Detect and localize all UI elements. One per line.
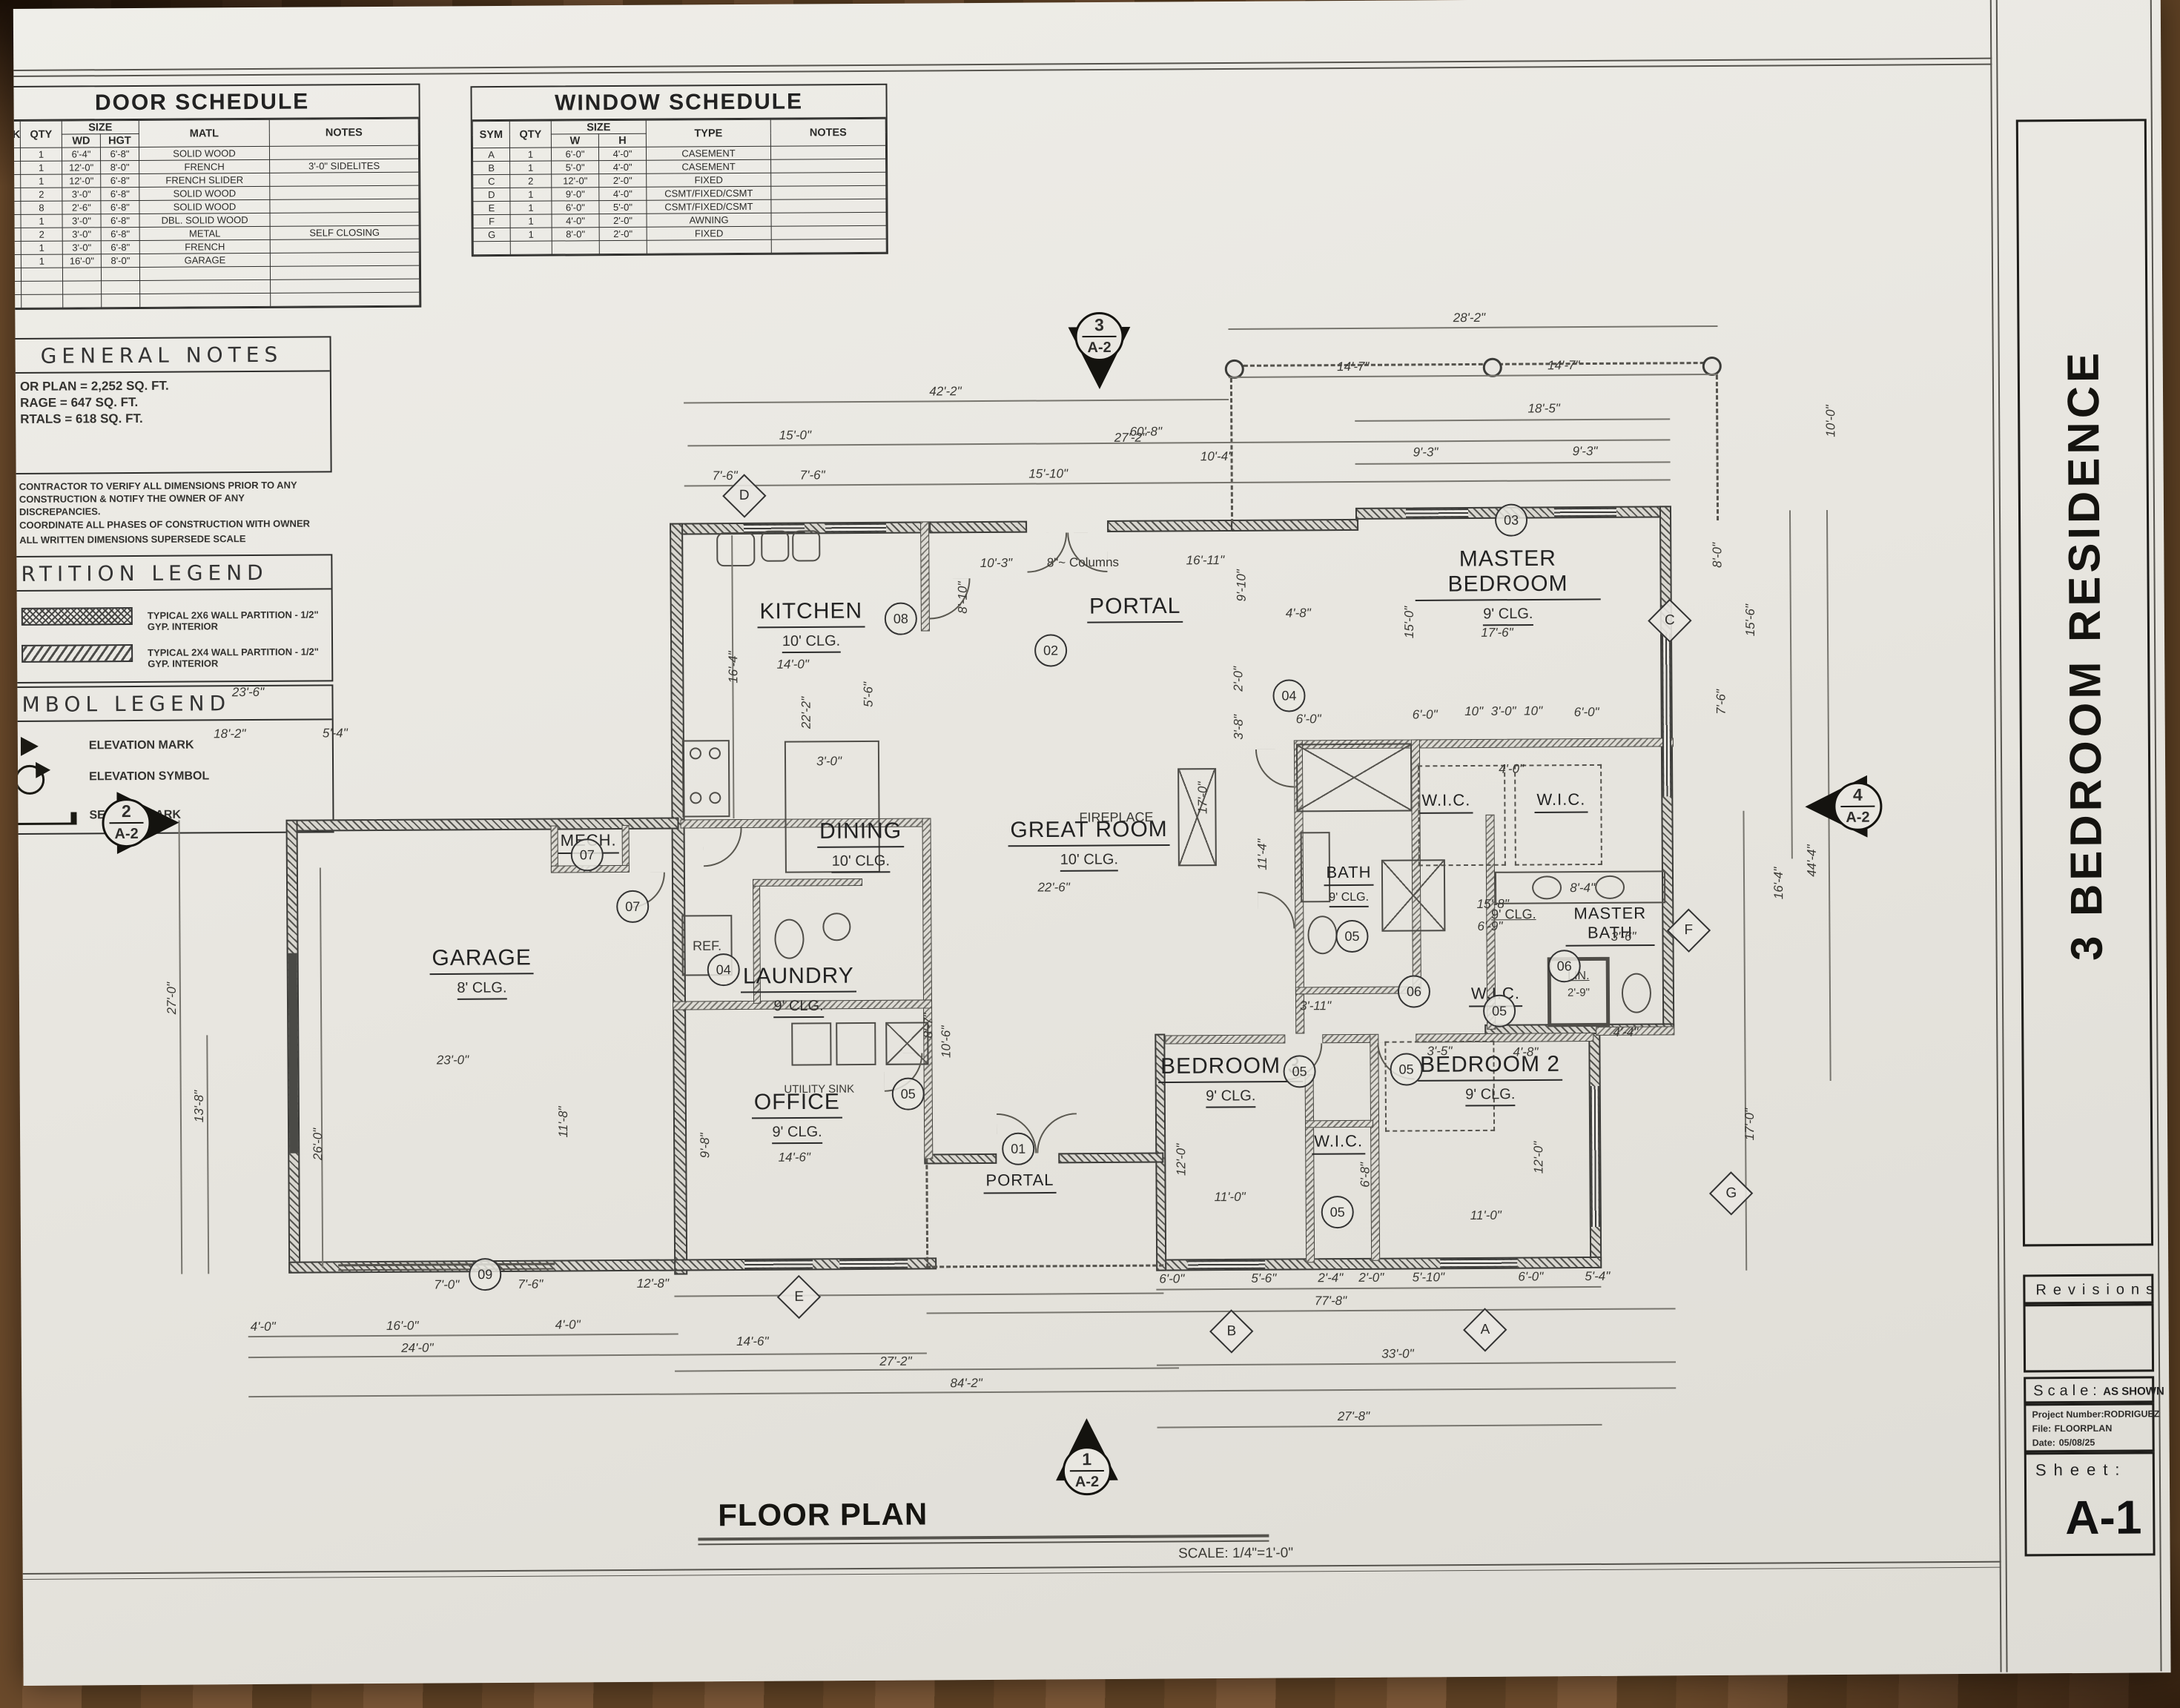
partition: [551, 826, 558, 872]
door-swing: [1258, 891, 1295, 928]
dim-label: 16'-11": [1186, 553, 1225, 568]
dim-label: 5'-4": [1585, 1269, 1610, 1284]
dim-label: 7'-6": [1714, 689, 1728, 715]
dim-line: [248, 1334, 678, 1338]
dim-label: 3'-8": [1232, 715, 1246, 740]
dim-label: 5'-6": [1251, 1271, 1276, 1286]
wall-segment: [670, 523, 687, 1274]
dim-label: 27'-0": [165, 982, 179, 1014]
dim-label: 15'-10": [1028, 466, 1068, 481]
dim-line: [1228, 325, 1717, 330]
partition: [1370, 1034, 1380, 1261]
dim-label: 11'-0": [1470, 1208, 1502, 1223]
col-size: SIZE: [62, 120, 139, 134]
dim-label: 7'-6": [713, 469, 738, 483]
dim-line: [674, 1293, 1163, 1297]
dim-label: 8'-4": [1570, 881, 1595, 896]
project-title: 3 BEDROOM RESIDENCE: [2058, 349, 2113, 961]
door-swing: [704, 828, 742, 867]
window: [1440, 1259, 1517, 1268]
dim-label: 9'-10": [1234, 569, 1249, 601]
room-bedroom-2: BEDROOM 29' CLG.: [1418, 1052, 1562, 1107]
project-number-label: Project Number:: [2032, 1409, 2104, 1420]
frame-line-bottom2: [13, 1567, 2001, 1580]
partition-legend: RTITION LEGEND TYPICAL 2X6 WALL PARTITIO…: [13, 554, 334, 683]
window-mark: A: [1463, 1308, 1507, 1351]
partition: [753, 878, 862, 887]
dim-label: 14'-6": [779, 1150, 810, 1165]
sheet-number: A-1: [2065, 1489, 2142, 1545]
symbol-legend-title: MBOL LEGEND: [13, 686, 332, 722]
door-mark: 07: [571, 838, 604, 871]
project-info-box: Project Number: RODRIGUEZ File: FLOORPLA…: [2024, 1403, 2154, 1452]
dim-label: 77'-8": [1315, 1294, 1347, 1308]
partition: [1165, 1035, 1285, 1045]
col-h: H: [598, 133, 646, 147]
col-mark: MARK: [13, 121, 21, 148]
door-row-empty: [13, 292, 420, 308]
dim-line: [1789, 510, 1793, 858]
dim-label: 8'-10": [956, 581, 971, 613]
wall-segment: [285, 818, 678, 832]
dim-label: 26'-0": [311, 1128, 326, 1160]
dim-label: 16'-4": [726, 651, 741, 683]
toilet: [774, 918, 804, 959]
frame-line-top-inner: [13, 64, 1992, 77]
dim-line: [675, 1367, 1179, 1371]
door-mark: 05: [892, 1078, 925, 1110]
col-type: TYPE: [646, 119, 770, 147]
revisions-label-box: Revisions: [2023, 1274, 2153, 1304]
window-mark: E: [777, 1275, 821, 1319]
shelves: [1381, 859, 1446, 932]
fireplace-label: FIREPLACE: [1079, 810, 1153, 826]
dim-label: 6'-8": [1358, 1162, 1373, 1188]
note-4: COORDINATE ALL PHASES OF CONSTRUCTION WI…: [19, 517, 310, 533]
room-portal-front: PORTAL: [983, 1171, 1056, 1194]
partition: [1322, 1034, 1371, 1043]
general-notes: GENERAL NOTES OR PLAN = 2,252 SQ. FT. RA…: [13, 336, 332, 474]
dim-label: 5'-6": [861, 682, 876, 707]
dim-label: 7'-6": [800, 468, 825, 483]
burner: [709, 792, 721, 804]
door-mark: 05: [1483, 995, 1516, 1027]
file-value: FLOORPLAN: [2055, 1423, 2113, 1434]
window: [839, 1260, 908, 1269]
area-garage: RAGE = 647 SQ. FT.: [20, 394, 138, 412]
project-number-value: RODRIGUEZ: [2104, 1409, 2159, 1419]
dim-label: 14'-7": [1548, 358, 1579, 373]
partition: [1305, 1120, 1373, 1128]
dim-label: 10'-6": [939, 1026, 954, 1058]
elevation-marker-left: 2A-2: [102, 798, 151, 847]
col-wd: WD: [62, 134, 100, 148]
door-schedule-table: MARK QTY SIZE MATL NOTES WD HGT 116'-4"6…: [13, 119, 420, 309]
dim-label: 3'-5": [1427, 1044, 1452, 1059]
window-mark: B: [1209, 1309, 1253, 1353]
col-size: SIZE: [551, 120, 646, 134]
toilet: [1307, 916, 1337, 954]
door-mark: 07: [616, 890, 649, 923]
dim-label: 6'-0": [1159, 1271, 1184, 1286]
room-kitchen: KITCHEN10' CLG.: [757, 598, 865, 653]
door-mark: 03: [1495, 504, 1527, 537]
dim-label: 24'-0": [401, 1341, 433, 1356]
dim-label: 3'-11": [1300, 999, 1331, 1013]
dim-label: 4'-0": [1499, 762, 1524, 777]
door-mark: 05: [1335, 920, 1368, 953]
date-value: 05/08/25: [2059, 1437, 2095, 1448]
burner: [709, 747, 721, 759]
burner: [690, 792, 701, 804]
col-sym: SYM: [472, 121, 509, 148]
dim-line: [1156, 1286, 1601, 1291]
dim-label: 17'-6": [1481, 626, 1513, 640]
dim-label: 3'-6": [1611, 930, 1636, 944]
dim-label: 6'-0": [1518, 1269, 1543, 1284]
toilet: [1622, 973, 1651, 1013]
room-wic-master-1: W.I.C.: [1419, 790, 1473, 813]
dim-label: 4'-0": [555, 1317, 581, 1332]
door-mark: 08: [885, 603, 917, 635]
scale-label: Scale:: [2033, 1383, 2101, 1400]
titleblock-left-line2: [1996, 0, 2008, 1672]
partition-2x6-swatch: [22, 607, 133, 626]
dim-label: 11'-0": [1215, 1190, 1246, 1205]
dim-label: 42'-2": [929, 384, 961, 399]
room-bath: BATH9' CLG.: [1324, 863, 1373, 907]
dim-label: 22'-2": [799, 697, 813, 729]
window: [288, 953, 299, 1153]
wic-outline: [1418, 765, 1506, 867]
dim-label: 13'-8": [192, 1090, 207, 1122]
dim-line: [248, 1352, 927, 1358]
room-master-bath: MASTER BATH: [1565, 904, 1654, 947]
window-schedule: WINDOW SCHEDULE SYM QTY SIZE TYPE NOTES …: [470, 84, 888, 256]
title-underline2: [698, 1540, 1269, 1546]
dim-line: [927, 1308, 1676, 1314]
dim-label: 84'-2": [950, 1376, 982, 1391]
symbol-legend: MBOL LEGEND ELEVATION MARK ELEVATION SYM…: [13, 684, 334, 835]
dim-label: 6'-0": [1413, 707, 1438, 722]
wall-segment: [929, 521, 1027, 534]
col-w: W: [551, 134, 598, 148]
general-notes-title: GENERAL NOTES: [13, 337, 330, 374]
dim-label: 27'-2": [879, 1354, 911, 1369]
window-row-empty: [473, 239, 886, 254]
wall-segment: [1107, 520, 1232, 532]
sink: [1532, 875, 1562, 899]
door-mark: 09: [469, 1258, 501, 1291]
dim-label: 2'-0": [1358, 1271, 1384, 1285]
partition: [1305, 1074, 1315, 1262]
door-mark: 05: [1390, 1053, 1422, 1085]
dim-line: [178, 821, 182, 1274]
sink: [1595, 875, 1625, 899]
burner: [690, 747, 701, 759]
scale-value: AS SHOWN: [2103, 1385, 2164, 1398]
room-master-bedroom: MASTER BEDROOM9' CLG.: [1415, 546, 1601, 626]
revisions-label: Revisions: [2035, 1281, 2160, 1299]
door-mark: 06: [1398, 975, 1430, 1007]
dim-label: 4'-8": [1286, 606, 1311, 620]
dim-label: 14'-0": [777, 657, 809, 672]
col-notes: NOTES: [269, 119, 418, 146]
window-mark: C: [1648, 599, 1691, 643]
door-schedule: DOOR SCHEDULE MARK QTY SIZE MATL NOTES W…: [13, 84, 421, 311]
blueprint-sheet: DOOR SCHEDULE MARK QTY SIZE MATL NOTES W…: [13, 0, 2171, 1686]
kitchen-sink-bowl: [792, 530, 820, 561]
partition: [920, 521, 930, 631]
door-mark: 05: [1321, 1196, 1354, 1228]
dim-label: 10": [1524, 704, 1542, 718]
dim-line: [206, 1035, 209, 1274]
dim-label: 9'-3": [1413, 445, 1439, 460]
col-matl: MATL: [139, 119, 269, 147]
shelves: [1296, 743, 1413, 812]
dim-label: 17'-0": [1195, 781, 1210, 813]
partition-2x6-label: TYPICAL 2X6 WALL PARTITION - 1/2" GYP. I…: [148, 609, 331, 632]
door-mark: 05: [1283, 1055, 1315, 1088]
door-swing: [1255, 749, 1294, 787]
sheet-box: Sheet: A-1: [2024, 1452, 2156, 1556]
dim-label: 14'-7": [1337, 360, 1369, 374]
ref-label: REF.: [693, 939, 721, 954]
washer: [791, 1022, 831, 1065]
dim-label: 27'-2": [1114, 431, 1146, 446]
dim-label: 7'-6": [518, 1277, 543, 1292]
partition-2x4-label: TYPICAL 2X4 WALL PARTITION - 1/2" GYP. I…: [148, 646, 331, 669]
dim-label: 2'-4": [1318, 1271, 1343, 1285]
sink: [822, 913, 850, 941]
columns-label: 8"~ Columns: [1047, 555, 1119, 571]
room-bedroom-3: BEDROOM 39' CLG.: [1158, 1053, 1303, 1108]
kitchen-sink: [716, 532, 755, 566]
col-qty: QTY: [509, 121, 551, 148]
dim-line: [1157, 1424, 1602, 1429]
room-wic-master-2: W.I.C.: [1534, 790, 1588, 813]
dim-label: 6'-9": [1477, 919, 1502, 934]
floor-plan: KITCHEN10' CLG. DINING10' CLG. GREAT ROO…: [13, 0, 2171, 6]
plan-scale-note: SCALE: 1/4"=1'-0": [1178, 1545, 1293, 1562]
dim-label: 44'-4": [1805, 844, 1820, 876]
dim-label: 6'-0": [1574, 705, 1599, 720]
dim-label: 15'-6": [1743, 604, 1758, 636]
door-mark: 02: [1034, 634, 1067, 666]
dim-label: 16'-4": [1771, 867, 1786, 899]
dim-line: [320, 867, 323, 1268]
dim-label: 33'-0": [1381, 1346, 1413, 1361]
dim-label: 16'-0": [386, 1319, 418, 1334]
door-mark: 06: [1548, 950, 1581, 982]
partition-legend-title: RTITION LEGEND: [13, 555, 331, 592]
dim-label: 9'-3": [1573, 444, 1598, 459]
partition: [922, 818, 933, 1159]
dim-label: 10'-3": [980, 556, 1012, 571]
dim-label: 11'-8": [556, 1106, 571, 1137]
floor-plan-title: FLOOR PLAN: [718, 1496, 928, 1533]
dim-line: [684, 399, 1229, 403]
window-schedule-title: WINDOW SCHEDULE: [472, 85, 885, 121]
room-portal-rear: PORTAL: [1087, 594, 1183, 623]
elevation-symbol-label: ELEVATION SYMBOL: [89, 769, 209, 784]
col-hgt: HGT: [100, 133, 139, 147]
section-mark-icon: [15, 812, 76, 825]
dim-label: 5'-10": [1413, 1270, 1444, 1285]
col-notes: NOTES: [770, 119, 885, 146]
room-dining: DINING10' CLG.: [817, 818, 904, 873]
dim-label: 3'-0": [816, 754, 842, 769]
dim-label: 15'-0": [779, 428, 811, 443]
dim-label: 8'-0": [1710, 543, 1725, 568]
note-2: CONSTRUCTION & NOTIFY THE OWNER OF ANY: [19, 491, 245, 506]
dim-label: 18'-2": [214, 726, 245, 741]
room-laundry: LAUNDRY9' CLG.: [741, 964, 856, 1019]
titleblock-left-line: [1990, 0, 2002, 1672]
scale-box: Scale: AS SHOWN: [2024, 1376, 2154, 1403]
door-mark: 01: [1002, 1133, 1034, 1165]
dim-label: 9'-8": [698, 1133, 713, 1158]
dryer: [836, 1022, 876, 1065]
kitchen-sink-bowl: [761, 531, 789, 562]
wic-outline: [1514, 764, 1602, 866]
window-schedule-table: SYM QTY SIZE TYPE NOTES W H A16'-0"4'-0"…: [472, 119, 887, 255]
door-schedule-title: DOOR SCHEDULE: [13, 85, 419, 122]
dim-label: 11'-4": [1255, 839, 1270, 870]
dim-label: 7'-0": [434, 1277, 459, 1292]
sheet-label: Sheet:: [2035, 1460, 2127, 1480]
partition-2x4-swatch: [22, 644, 133, 663]
elevation-marker-right: 4A-2: [1833, 782, 1882, 831]
dim-label: 12'-0": [1174, 1144, 1189, 1176]
dim-label: 23'-0": [437, 1053, 469, 1067]
room-office: OFFICE9' CLG.: [752, 1090, 842, 1145]
dim-label: 10": [1464, 704, 1483, 719]
dim-label: 4'-8": [1513, 1045, 1538, 1059]
date-label: Date:: [2032, 1437, 2055, 1448]
dim-label: 22'-6": [1037, 880, 1069, 895]
elevation-marker-bottom: 1A-2: [1063, 1446, 1112, 1495]
area-floor-plan: OR PLAN = 2,252 SQ. FT.: [20, 377, 169, 396]
dim-label: 15'-8": [1477, 897, 1509, 912]
door-mark: 04: [707, 953, 740, 986]
note-5: ALL WRITTEN DIMENSIONS SUPERSEDE SCALE: [19, 532, 245, 547]
area-portals: RTALS = 618 SQ. FT.: [20, 410, 143, 428]
room-garage: GARAGE8' CLG.: [429, 945, 534, 1000]
dim-label: 4'-4": [1613, 1025, 1638, 1040]
elevation-marker-top: 3A-2: [1074, 312, 1123, 361]
utility-sink-label: UTILITY SINK: [784, 1083, 854, 1096]
dim-label: 18'-5": [1527, 401, 1559, 416]
dim-label: 3'-0": [1491, 704, 1516, 719]
dim-label: 4'-0": [251, 1320, 276, 1334]
dim-label: 10'-4": [1200, 449, 1232, 464]
dim-label: 5'-4": [323, 726, 348, 741]
window: [825, 523, 886, 533]
elevation-mark-label: ELEVATION MARK: [89, 739, 194, 753]
dim-label: 2'-0": [1231, 666, 1246, 692]
partition: [622, 825, 630, 871]
dim-label: 12'-8": [637, 1277, 669, 1291]
revisions-empty-box: [2024, 1303, 2155, 1372]
elevation-mark-icon: [21, 737, 39, 756]
dim-label: 17'-0": [1743, 1108, 1757, 1140]
sheet-content: DOOR SCHEDULE MARK QTY SIZE MATL NOTES W…: [13, 0, 2171, 1686]
window: [1662, 633, 1671, 796]
dim-label: 23'-6": [232, 685, 264, 700]
title-underline: [698, 1535, 1269, 1541]
dim-label: 12'-0": [1531, 1142, 1546, 1174]
file-label: File:: [2032, 1423, 2052, 1434]
dim-label: 28'-2": [1453, 311, 1485, 325]
window: [744, 1260, 813, 1269]
dim-line: [1157, 1361, 1676, 1366]
dim-label: 14'-6": [736, 1334, 768, 1349]
door-mark: 04: [1272, 679, 1305, 712]
note-3: DISCREPANCIES.: [19, 505, 101, 519]
col-qty: QTY: [20, 121, 62, 148]
window: [1591, 1086, 1600, 1227]
dim-label: 15'-0": [1402, 606, 1417, 638]
dim-label: 8'-7": [921, 1013, 936, 1038]
dim-label: 10'-0": [1823, 405, 1838, 437]
dim-label: 6'-0": [1296, 712, 1321, 726]
lin-dim: 2'-9": [1568, 987, 1590, 999]
door-swing: [1037, 1113, 1077, 1153]
room-wic-center: W.I.C.: [1312, 1131, 1365, 1154]
window: [1188, 1260, 1265, 1270]
dim-label: 27'-8": [1338, 1409, 1370, 1424]
